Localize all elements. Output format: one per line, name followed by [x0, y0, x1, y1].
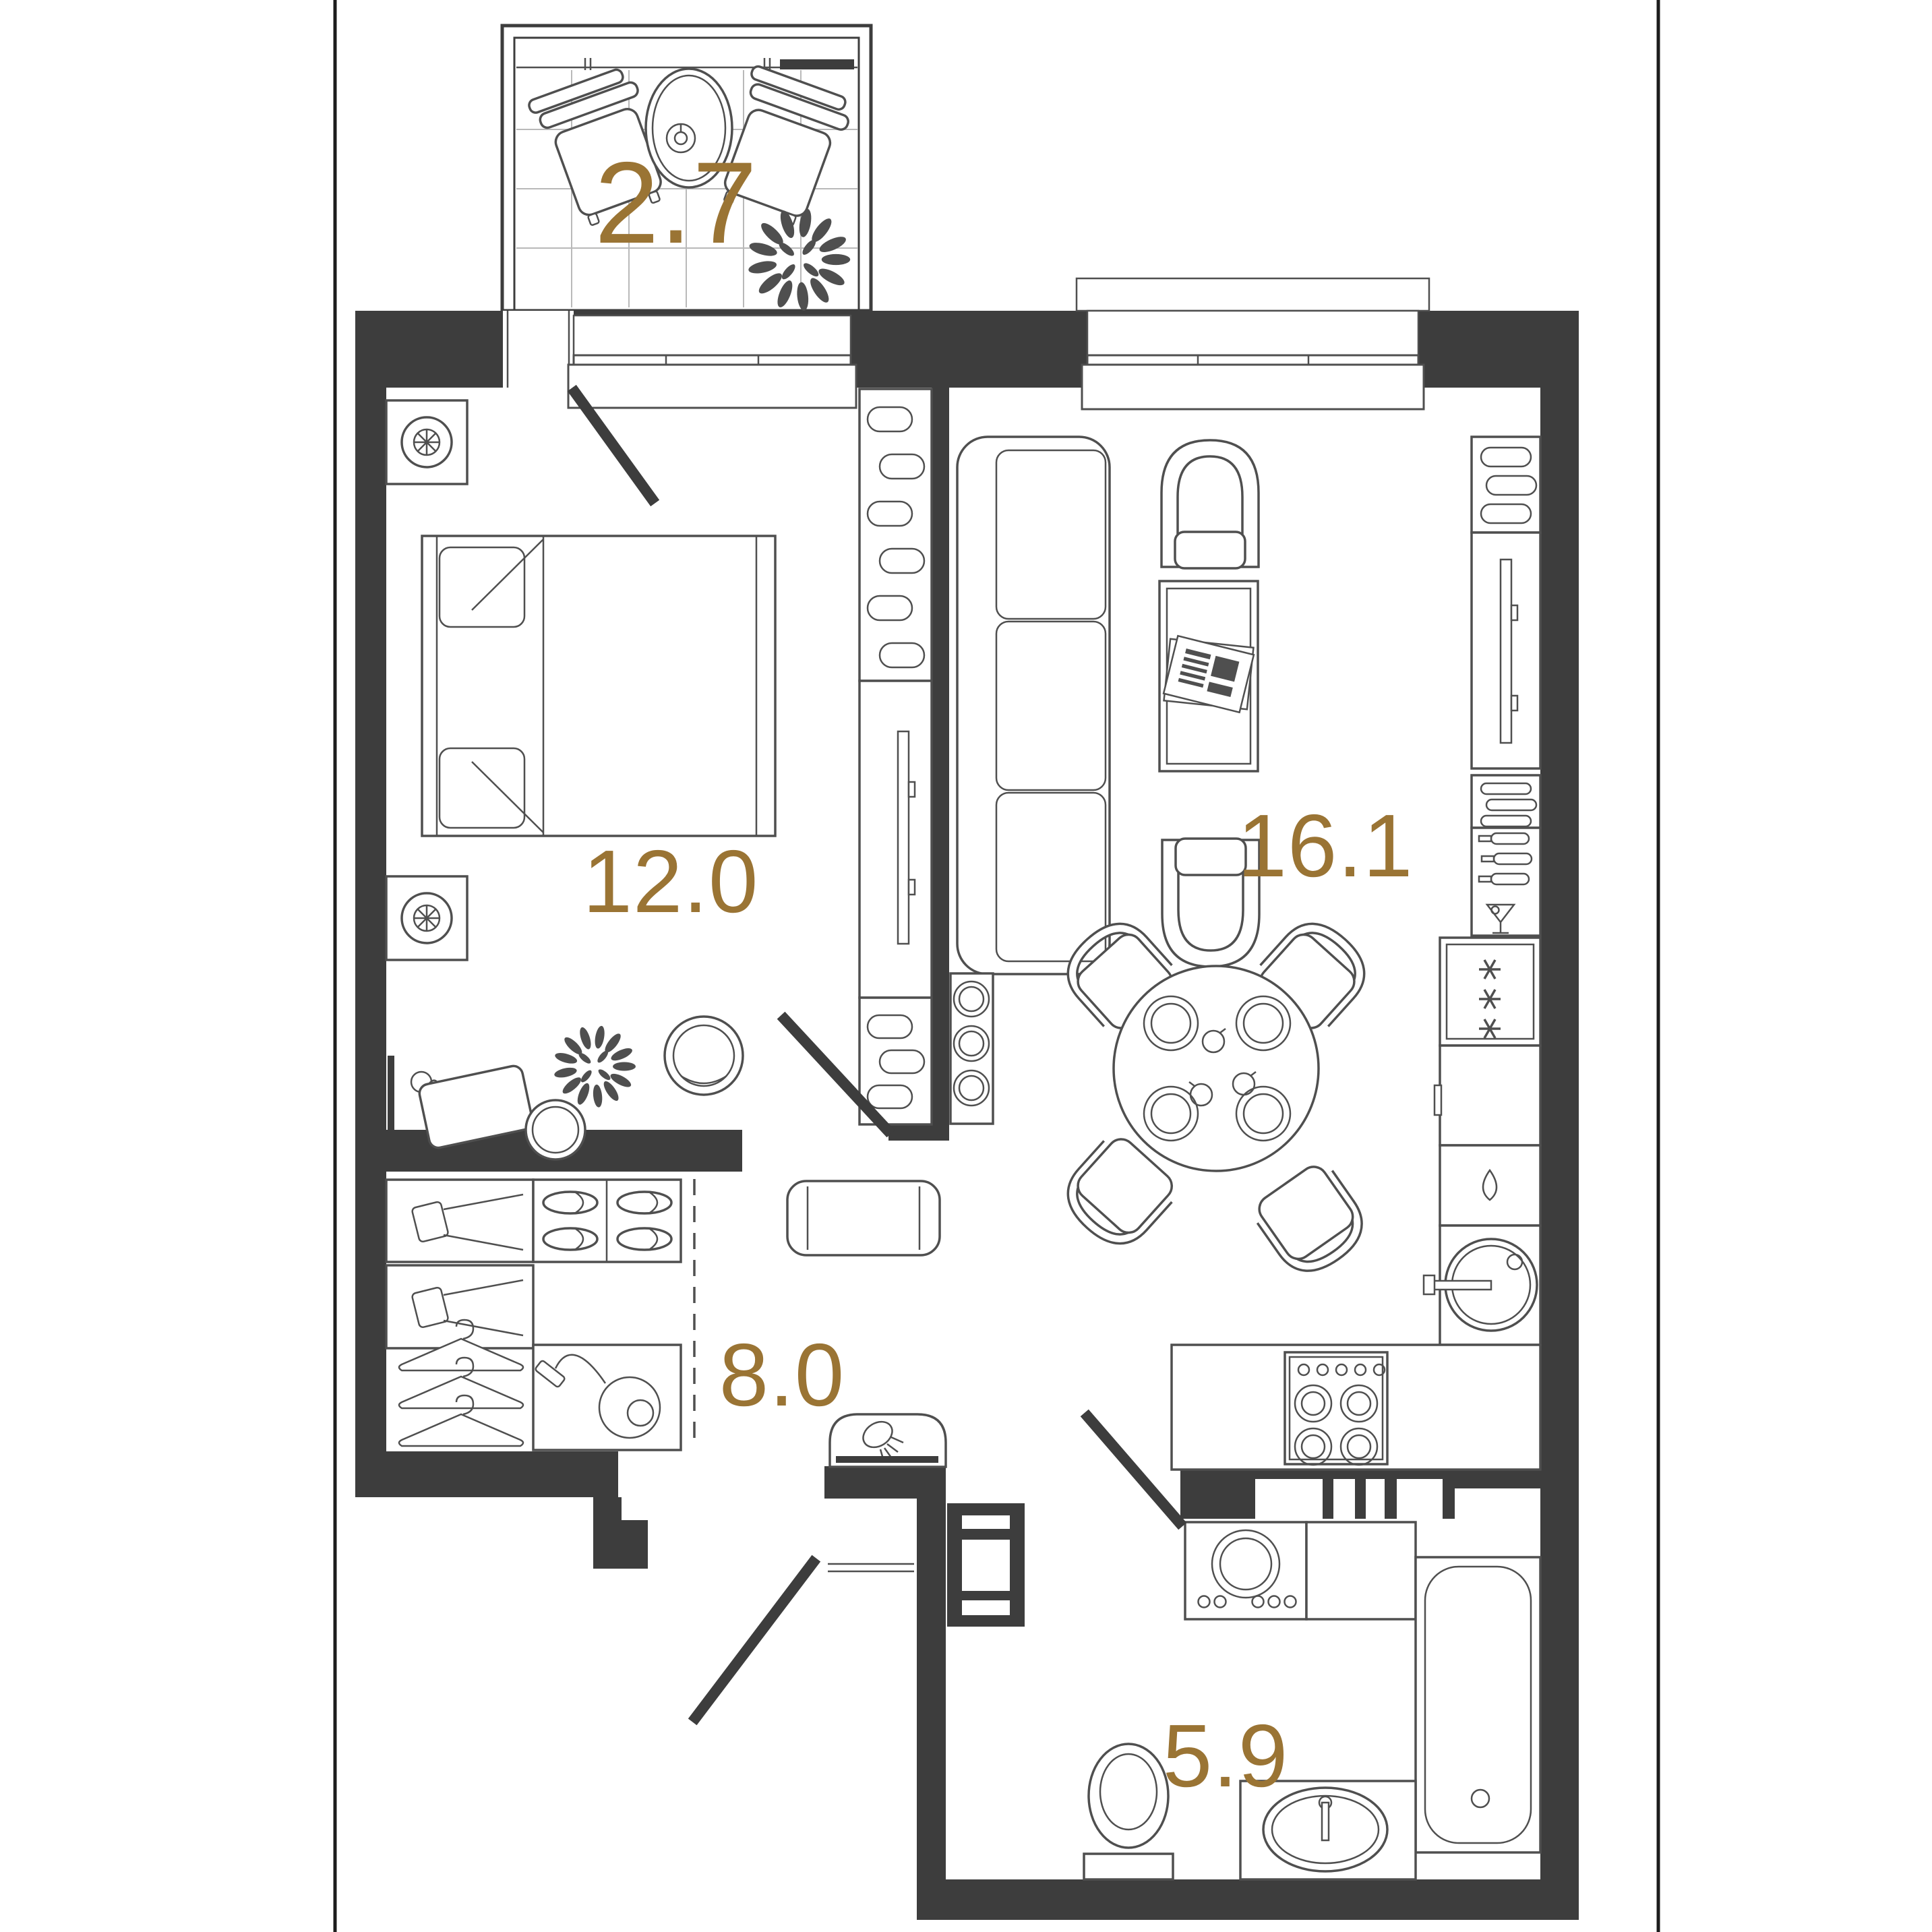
wardrobe: [859, 389, 932, 681]
washing-machine: [1185, 1522, 1306, 1619]
wall-kitchen-bath-slotted: [1180, 1470, 1540, 1519]
slipper-icon: [543, 1192, 597, 1213]
slipper-box: [533, 1180, 681, 1262]
balcony-glazing-sash: [780, 59, 854, 69]
bench: [787, 1181, 940, 1255]
armchair-top: [1161, 440, 1259, 568]
fridge: [1440, 938, 1540, 1046]
vacuum-box: [533, 1345, 681, 1450]
entrance-lamp: [830, 1414, 946, 1467]
wall-bathroom-left: [917, 1499, 946, 1920]
kitchen-cabinet-mid: [1472, 775, 1540, 828]
wall-left: [355, 311, 386, 1497]
wine-cabinet: [1472, 828, 1540, 936]
pillow: [440, 748, 524, 828]
bathtub: [1416, 1557, 1540, 1852]
pillow: [440, 547, 524, 627]
window-living: [1077, 278, 1429, 409]
stove: [1285, 1352, 1387, 1465]
bed: [422, 536, 775, 836]
bottle-icon: [1479, 833, 1532, 884]
kitchen-counter-segment: [1440, 1046, 1540, 1145]
wall-bottom: [917, 1879, 1579, 1920]
area-label-balcony: 2.7: [595, 138, 758, 268]
floor-plan-page: 2.7 12.0 16.1 8.0 5.9: [0, 0, 1932, 1932]
round-chair: [665, 1017, 743, 1095]
tv: [898, 731, 909, 944]
console-shelf: [950, 973, 993, 1124]
tv: [1501, 560, 1511, 743]
bathroom-counter: [1306, 1522, 1416, 1619]
table-lamp-icon: [402, 417, 452, 467]
wall-entry-step-b: [622, 1520, 648, 1569]
dining-table: [1114, 966, 1319, 1171]
area-label-hallway: 8.0: [719, 1325, 845, 1424]
balcony-door: [503, 311, 574, 388]
sofa: [957, 437, 1110, 974]
wall-bedroom-door-stub: [888, 1124, 949, 1141]
mirror: [388, 1056, 394, 1134]
slipper-icon: [617, 1228, 671, 1250]
slipper-icon: [617, 1192, 671, 1213]
wall-entry-step-a: [593, 1497, 622, 1569]
kitchen-sink: [1424, 1226, 1540, 1345]
tv-stand-bedroom: [859, 681, 932, 998]
floor-plan-svg: 2.7 12.0 16.1 8.0 5.9: [0, 0, 1932, 1932]
tap-icon: [1429, 1281, 1491, 1290]
shoe-shelf-box-1: [386, 1180, 533, 1262]
window-sill-living: [1082, 365, 1424, 409]
area-label-bathroom: 5.9: [1163, 1706, 1289, 1805]
window-sill-bedroom: [568, 365, 856, 408]
counter-handle: [1435, 1085, 1441, 1115]
wall-right: [1540, 311, 1579, 1920]
area-label-living-kitchen: 16.1: [1238, 796, 1414, 895]
slipper-icon: [543, 1228, 597, 1250]
table-lamp-icon: [402, 893, 452, 943]
toilet: [1084, 1744, 1173, 1879]
coffee-table: [1155, 581, 1262, 771]
kitchen-cabinet-top: [1472, 437, 1540, 533]
towel-rail: [947, 1503, 1025, 1627]
wall-under-lamp: [824, 1466, 946, 1499]
window-bedroom: [568, 315, 856, 408]
kitchen-counter-bottom: [1172, 1345, 1540, 1470]
stool: [526, 1100, 585, 1159]
area-label-bedroom: 12.0: [583, 832, 759, 931]
sink-base-cabinet: [1440, 1145, 1540, 1226]
tv-unit-living: [1472, 533, 1540, 768]
wall-hallway-south: [355, 1451, 618, 1497]
shoe-shelf-box-2: [386, 1265, 533, 1348]
wall-interior-bedroom-living: [932, 388, 949, 1124]
